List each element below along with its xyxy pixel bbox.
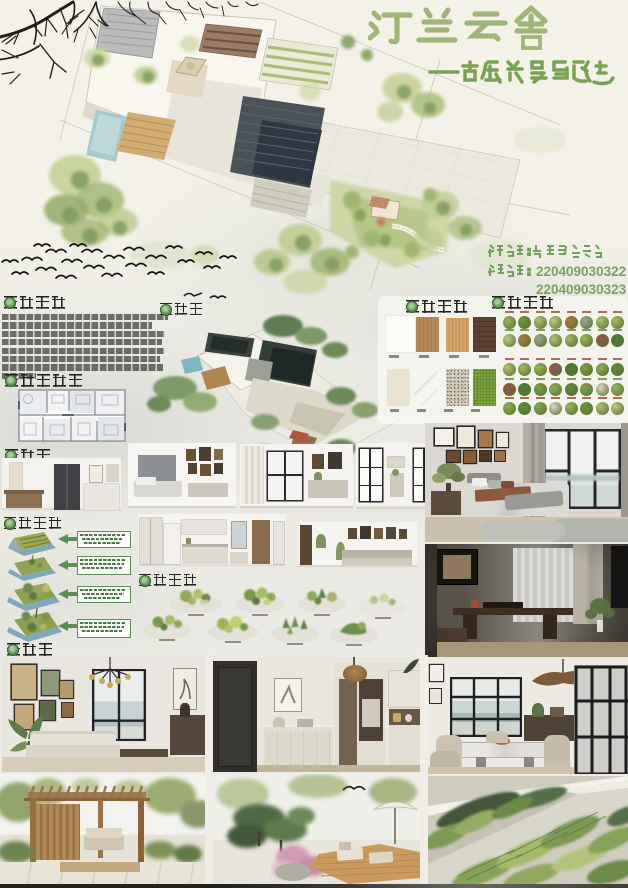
svg-text:220409030323: 220409030323 [536,282,627,297]
svg-text:220409030322: 220409030322 [536,264,626,279]
svg-text::: : [527,264,531,278]
svg-text::: : [527,244,531,258]
